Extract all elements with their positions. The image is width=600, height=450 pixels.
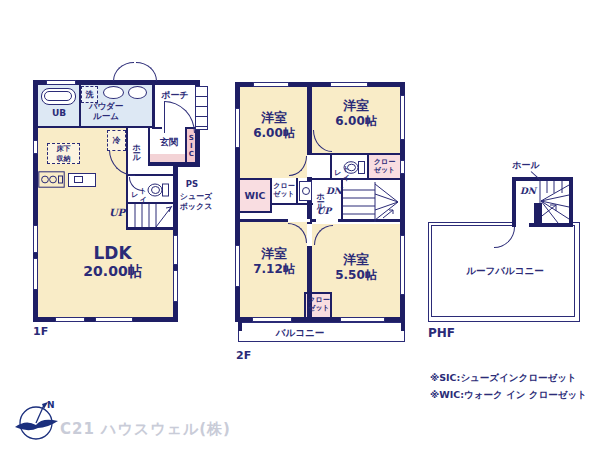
sic-label: SIC bbox=[187, 130, 195, 162]
compass-north-icon: N bbox=[13, 395, 61, 445]
2f-closet-w-label: クローゼット bbox=[273, 182, 295, 199]
2f-wall-wic-right bbox=[270, 180, 272, 211]
2f-window-right-2 bbox=[400, 160, 405, 174]
ub-label: UB bbox=[44, 108, 74, 119]
2f-spine-gap-2 bbox=[307, 224, 312, 246]
kitchen-counter bbox=[68, 173, 96, 187]
2f-mid-gap-1 bbox=[288, 219, 310, 222]
2f-wall-ne-bottom bbox=[312, 153, 400, 155]
2f-room-ne-label: 洋室 6.00帖 bbox=[320, 98, 392, 128]
2f-window-top-1 bbox=[253, 82, 289, 87]
2f-spine-gap-1 bbox=[307, 155, 312, 177]
underfloor-label: 床下収納 bbox=[56, 144, 72, 164]
2f-room-sw-label: 洋室 7.12帖 bbox=[244, 246, 304, 276]
1f-porch-steps bbox=[195, 86, 208, 130]
ldk-name: LDK bbox=[70, 243, 155, 263]
note-sic: ※SIC:シューズインクローゼット bbox=[430, 372, 590, 383]
underfloor-storage-box: 床下収納 bbox=[47, 143, 80, 164]
fridge-label: 冷 bbox=[113, 135, 121, 146]
1f-exterior-door-arc-right bbox=[136, 62, 157, 81]
note-wic: ※WIC:ウォーク イン クローゼット bbox=[430, 389, 595, 400]
room-name: 洋室 bbox=[244, 110, 304, 126]
shoebox-label: シューズボックス bbox=[179, 192, 213, 211]
room-size: 7.12帖 bbox=[244, 262, 304, 276]
wic-label: WIC bbox=[242, 190, 268, 201]
2f-wall-toilet-left bbox=[330, 155, 332, 180]
2f-wall-wic-bottom bbox=[240, 211, 272, 213]
2f-wall-spine bbox=[307, 87, 312, 317]
1f-genkan-tataki bbox=[150, 154, 187, 162]
stove-icon bbox=[38, 171, 65, 188]
floor-plan-canvas: 洗 冷 床下収納 UB パウダールーム ポーチ 玄関 SIC ホール トイレ U… bbox=[0, 0, 600, 450]
hall-1f-label: ホール bbox=[131, 132, 141, 166]
stairs-2f bbox=[343, 182, 400, 222]
sink-icon-2 bbox=[128, 86, 147, 99]
floor-label-phf: PHF bbox=[428, 326, 462, 340]
2f-closet-ne-label: クローゼット bbox=[372, 158, 397, 175]
2f-closet-s-label: クローゼット bbox=[307, 296, 331, 313]
toilet-2f-label: トイレ bbox=[333, 157, 350, 180]
room-size: 6.00帖 bbox=[320, 114, 392, 128]
1f-wall-hall-genkan bbox=[148, 128, 150, 162]
2f-mid-gap-2 bbox=[316, 219, 338, 222]
2f-wall-closetw-right bbox=[296, 178, 298, 205]
2f-wall-closets-top bbox=[304, 292, 332, 294]
dn-2f-label: DN bbox=[326, 186, 342, 197]
1f-wall-genkan-bottom bbox=[148, 162, 195, 166]
2f-room-nw-label: 洋室 6.00帖 bbox=[244, 110, 304, 140]
powder-room-label: パウダールーム bbox=[86, 101, 126, 121]
2f-wall-toilet-closet bbox=[367, 155, 369, 180]
room-size: 5.50帖 bbox=[316, 268, 396, 282]
2f-wall-wic-top bbox=[240, 178, 272, 180]
1f-window-right-2 bbox=[173, 270, 178, 302]
room-name: 洋室 bbox=[244, 246, 304, 262]
1f-window-bottom-2 bbox=[95, 317, 133, 322]
room-size: 6.00帖 bbox=[244, 126, 304, 140]
ldk-size: 20.00帖 bbox=[70, 263, 155, 280]
1f-window-right-1 bbox=[173, 235, 178, 265]
1f-wall-under-row1 bbox=[38, 126, 152, 128]
washbasin-2f bbox=[299, 181, 312, 201]
1f-wall-stairs-bottom bbox=[126, 227, 178, 230]
porch-label: ポーチ bbox=[157, 90, 193, 101]
room-name: 洋室 bbox=[320, 98, 392, 114]
ldk-label: LDK 20.00帖 bbox=[70, 243, 155, 280]
up-2f-label: UP bbox=[316, 206, 332, 217]
2f-window-left-1 bbox=[235, 108, 240, 148]
2f-wall-sink-bottom bbox=[272, 203, 313, 205]
2f-balcony-stub-right bbox=[401, 322, 405, 331]
room-name: 洋室 bbox=[316, 252, 396, 268]
roof-balcony-label: ルーフバルコニー bbox=[450, 265, 560, 276]
1f-window-left-1 bbox=[33, 140, 38, 154]
phf-hall-label: ホール bbox=[506, 160, 546, 171]
1f-window-left-2 bbox=[33, 225, 38, 253]
up-1f-label: UP bbox=[108, 207, 126, 219]
fridge-box: 冷 bbox=[107, 130, 126, 151]
floor-label-2f: 2F bbox=[236, 349, 260, 362]
bathtub-icon bbox=[41, 88, 76, 105]
2f-window-right-3 bbox=[400, 235, 405, 295]
2f-window-top-2 bbox=[330, 82, 368, 87]
1f-wall-porch-genkan-left bbox=[152, 127, 162, 129]
ps-label: PS bbox=[183, 179, 201, 189]
dn-phf-label: DN bbox=[518, 186, 538, 197]
washer-label: 洗 bbox=[86, 89, 94, 100]
balcony-label: バルコニー bbox=[270, 327, 330, 338]
2f-window-right-1 bbox=[400, 95, 405, 140]
compass-n-label: N bbox=[47, 400, 55, 410]
2f-wall-closets-left bbox=[304, 292, 306, 317]
phf-door-gap bbox=[516, 223, 529, 227]
1f-wall-powder-porch bbox=[152, 85, 155, 129]
toilet-icon-1f bbox=[146, 181, 170, 199]
1f-window-top-ub bbox=[46, 80, 76, 85]
1f-window-left-3 bbox=[33, 258, 38, 290]
floor-label-1f: 1F bbox=[33, 325, 57, 338]
2f-room-se-label: 洋室 5.50帖 bbox=[316, 252, 396, 282]
sink-icon-1 bbox=[103, 86, 124, 99]
2f-wall-toilet-bottom bbox=[312, 178, 400, 180]
1f-exterior-door-arc-left bbox=[113, 62, 134, 81]
genkan-label: 玄関 bbox=[156, 137, 182, 148]
company-name: C21 ハウスウェル(株) bbox=[60, 420, 231, 439]
toilet-1f-label: トイレ bbox=[130, 178, 147, 203]
stairs-1f bbox=[128, 204, 173, 227]
1f-window-bottom-1 bbox=[55, 317, 85, 322]
2f-window-left-2 bbox=[235, 245, 240, 287]
2f-balcony-stub-left bbox=[238, 322, 242, 331]
